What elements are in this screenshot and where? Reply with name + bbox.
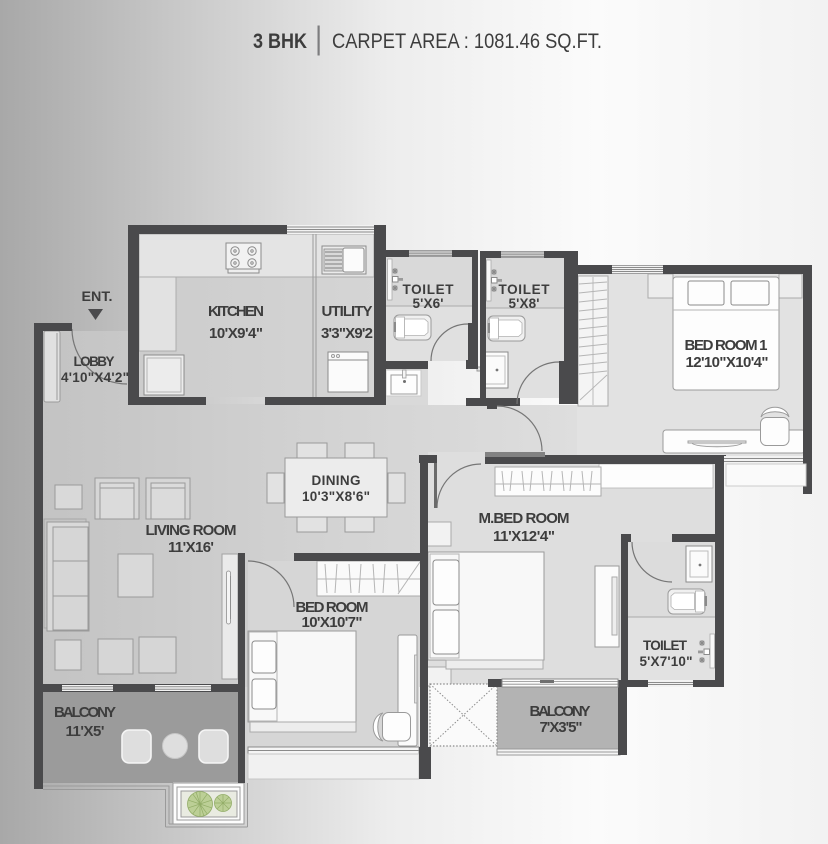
svg-text:M.BED ROOM: M.BED ROOM: [479, 510, 570, 527]
svg-text:12'10"X10'4": 12'10"X10'4": [686, 354, 769, 371]
svg-text:7'X3'5": 7'X3'5": [540, 719, 583, 736]
svg-text:10'X10'7": 10'X10'7": [302, 614, 363, 631]
svg-text:11'X5': 11'X5': [66, 723, 105, 740]
svg-text:BALCONY: BALCONY: [530, 703, 591, 720]
svg-text:BALCONY: BALCONY: [54, 704, 116, 721]
svg-text:4'10"X4'2": 4'10"X4'2": [61, 370, 129, 385]
svg-text:TOILET: TOILET: [499, 282, 551, 297]
svg-text:KITCHEN: KITCHEN: [208, 303, 264, 320]
svg-text:10'X9'4": 10'X9'4": [209, 325, 263, 342]
svg-text:3 BHK: 3 BHK: [253, 29, 307, 53]
svg-text:BED ROOM 1: BED ROOM 1: [685, 337, 768, 354]
svg-text:CARPET AREA : 1081.46 SQ.FT.: CARPET AREA : 1081.46 SQ.FT.: [332, 29, 602, 53]
svg-text:UTILITY: UTILITY: [322, 303, 373, 320]
svg-text:3'3"X9'2: 3'3"X9'2: [321, 325, 373, 342]
svg-text:LIVING ROOM: LIVING ROOM: [146, 522, 237, 539]
svg-text:5'X6': 5'X6': [413, 296, 444, 311]
svg-text:5'X8': 5'X8': [509, 296, 540, 311]
svg-text:DINING: DINING: [312, 473, 361, 488]
svg-text:5'X7'10": 5'X7'10": [640, 654, 693, 669]
svg-text:11'X12'4": 11'X12'4": [493, 528, 555, 545]
svg-text:TOILET: TOILET: [643, 638, 688, 653]
svg-text:TOILET: TOILET: [403, 282, 455, 297]
svg-text:LOBBY: LOBBY: [74, 354, 115, 369]
svg-text:11'X16': 11'X16': [168, 539, 214, 556]
svg-text:ENT.: ENT.: [82, 289, 113, 304]
svg-text:10'3"X8'6": 10'3"X8'6": [302, 489, 370, 504]
